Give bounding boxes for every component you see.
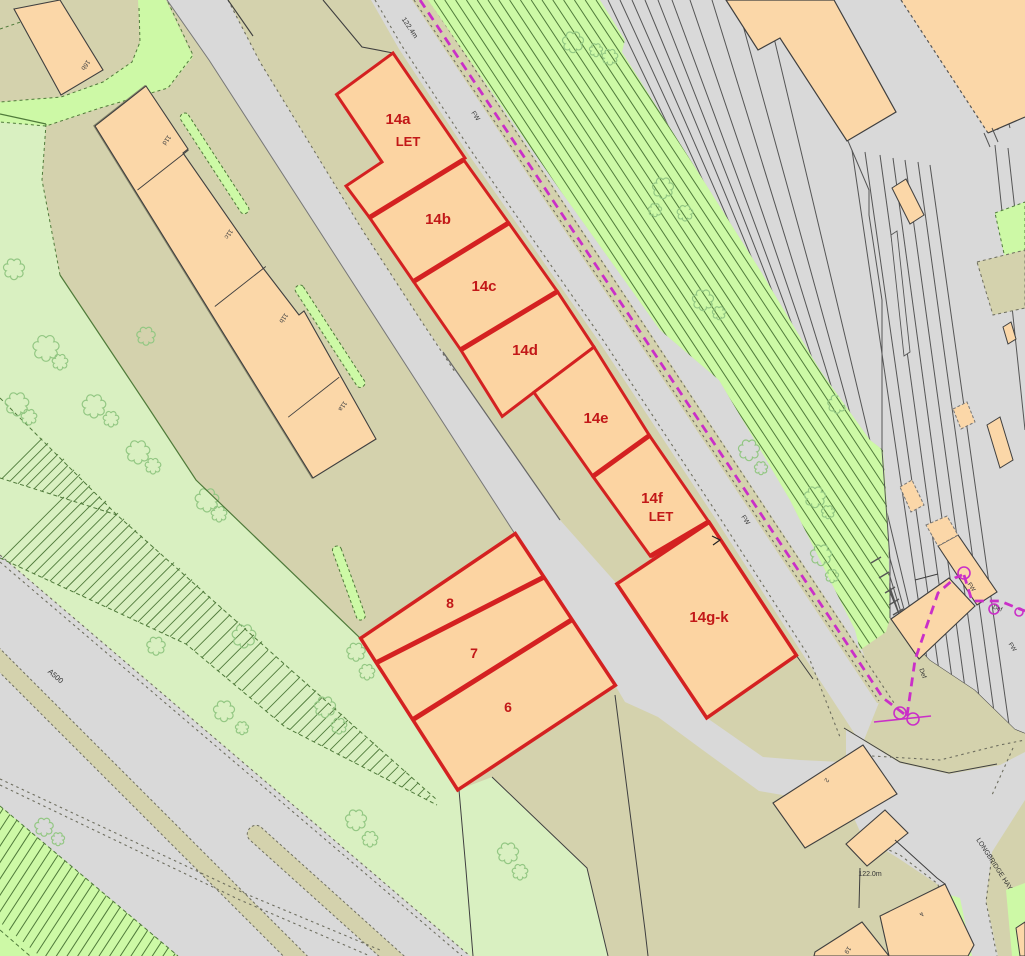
svg-text:8: 8: [446, 595, 454, 611]
svg-text:7: 7: [470, 645, 478, 661]
svg-text:14a: 14a: [385, 111, 411, 128]
svg-text:122.0m: 122.0m: [858, 871, 882, 878]
svg-text:14b: 14b: [425, 211, 451, 228]
svg-text:14c: 14c: [471, 278, 496, 295]
svg-text:LET: LET: [396, 134, 421, 149]
svg-text:LET: LET: [649, 509, 674, 524]
svg-text:6: 6: [504, 699, 512, 715]
svg-text:14f: 14f: [641, 490, 664, 507]
svg-text:14e: 14e: [583, 410, 608, 427]
svg-text:14d: 14d: [512, 342, 538, 359]
svg-text:14g-k: 14g-k: [689, 609, 729, 626]
